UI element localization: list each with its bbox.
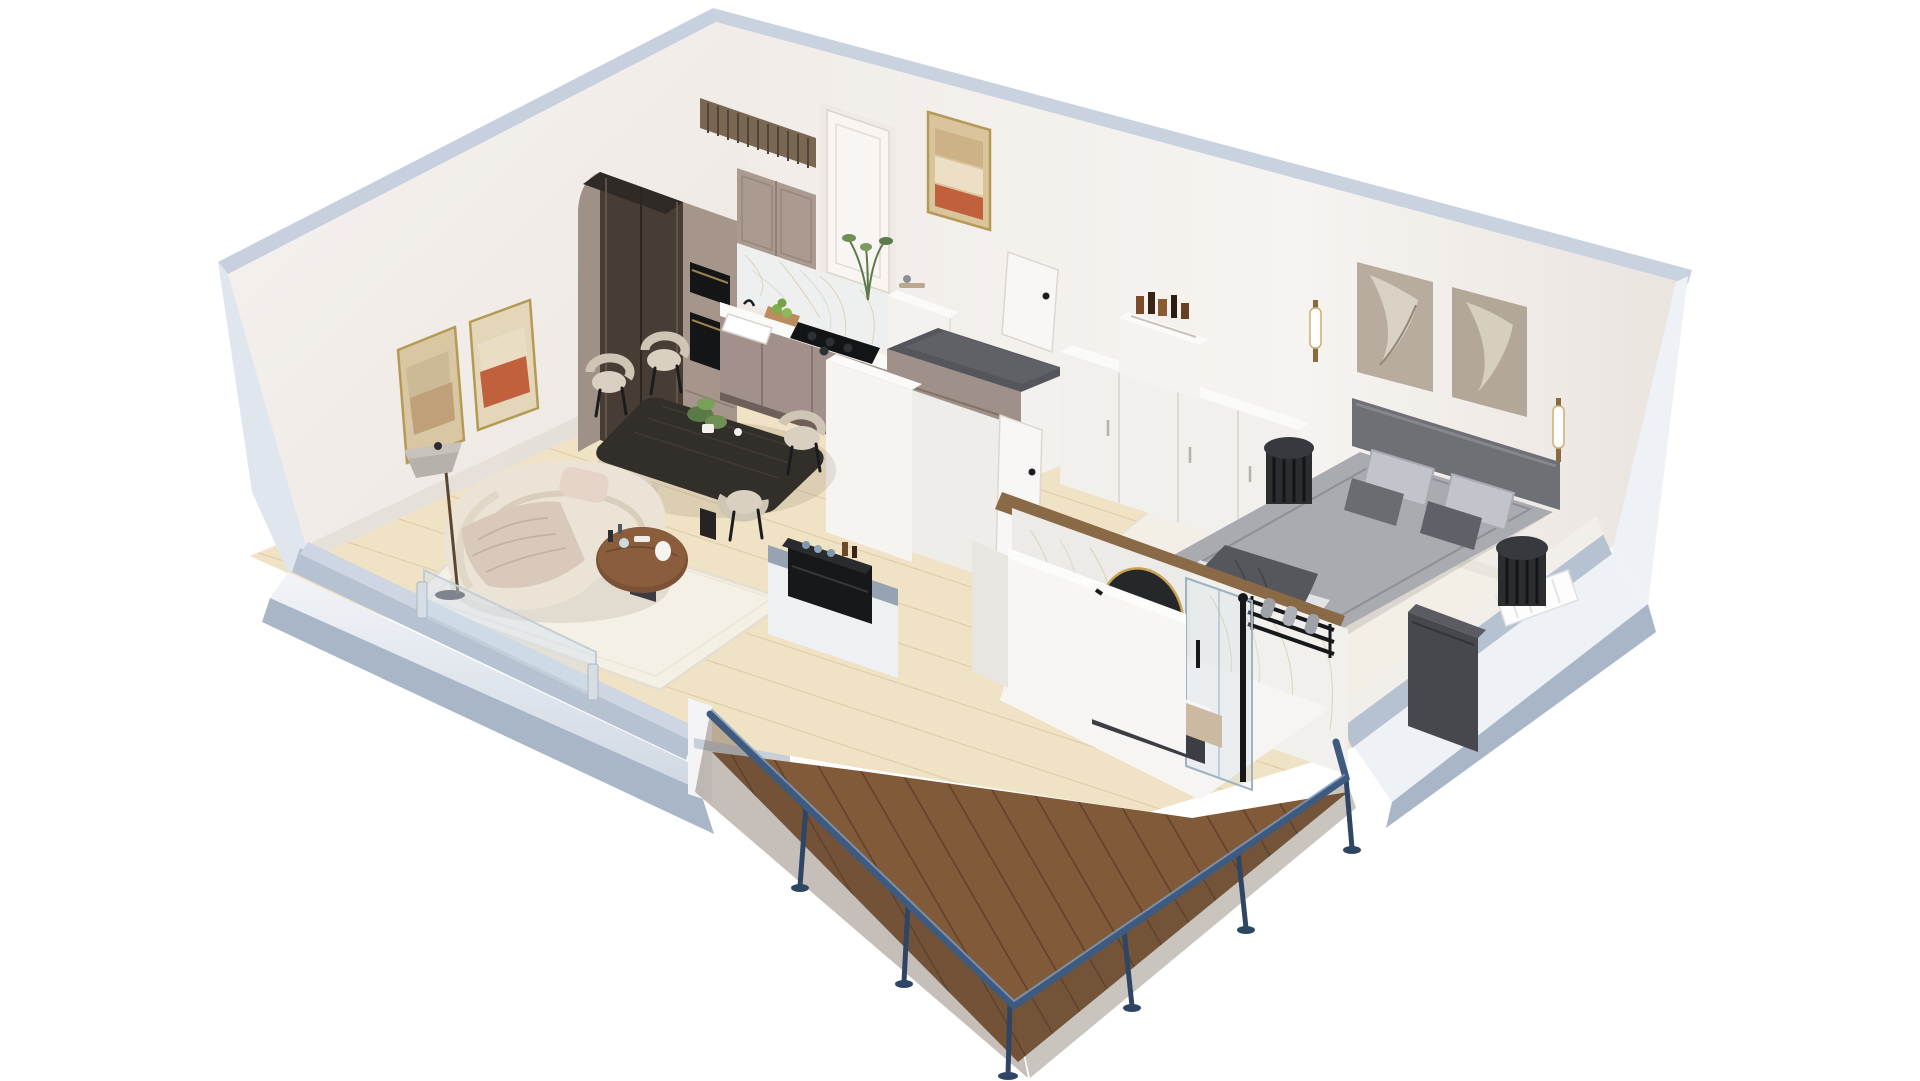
nightstand-left — [1264, 437, 1314, 504]
tv-cabinet — [1408, 604, 1486, 752]
shower-column — [1240, 600, 1246, 782]
nightstand-right — [1496, 536, 1548, 606]
decor-vase — [655, 541, 671, 561]
apartment-isometric-scene: 3D isometric cutaway floor plan render o… — [0, 0, 1920, 1081]
floorplan-render: 3D isometric cutaway floor plan render o… — [0, 0, 1920, 1081]
kitchen-artwork — [928, 112, 990, 230]
entry-door — [820, 102, 896, 302]
entry-door-leaf — [1002, 252, 1058, 352]
